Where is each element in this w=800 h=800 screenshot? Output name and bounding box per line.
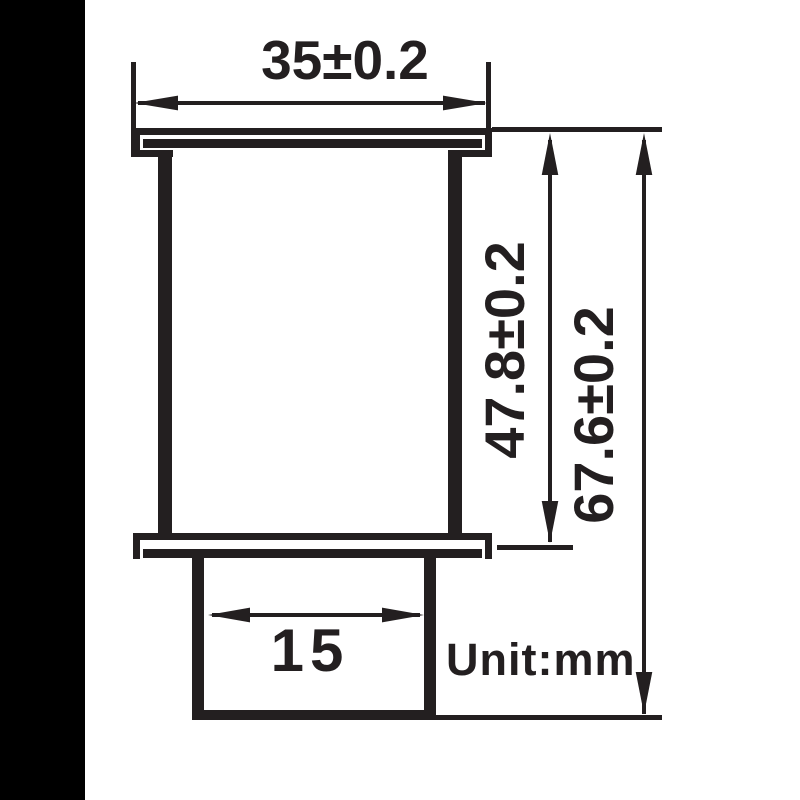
bottom-flange-right-cap	[485, 533, 492, 559]
overall-height-dimension-label: 67.6±0.2	[564, 265, 624, 565]
bottom-flange-left-cap	[133, 533, 140, 559]
stem-bottom-edge	[192, 710, 436, 720]
arrow-right-icon	[382, 607, 424, 623]
top-flange-inner-band	[143, 139, 482, 148]
bottom-flange-top-edge	[133, 533, 492, 540]
arrow-up-icon	[541, 133, 559, 175]
arrow-left-icon	[134, 95, 178, 111]
unit-note-label: Unit:mm	[446, 634, 635, 686]
body-right-wall	[448, 152, 462, 537]
extension-line-right-top	[492, 127, 662, 132]
inner-height-dimension-label: 47.8±0.2	[475, 200, 535, 500]
arrow-down-icon	[541, 501, 559, 543]
extension-line-right-bottom	[436, 715, 662, 720]
stem-left-wall	[192, 556, 204, 716]
arrow-up-icon	[635, 133, 653, 175]
body-left-wall	[158, 152, 172, 537]
top-flange-top-edge	[133, 128, 492, 135]
dimension-line-overall-height	[642, 140, 646, 714]
stem-width-dimension-label: 15	[240, 616, 380, 685]
arrow-right-icon	[443, 95, 487, 111]
dimension-line-top-width	[138, 101, 485, 105]
stem-right-wall	[424, 556, 436, 716]
extension-line-right-middle	[497, 545, 573, 550]
technical-drawing-canvas: 35±0.2 15 47.8±0.2 67.6±0.2 Unit:mm	[0, 0, 800, 800]
top-width-dimension-label: 35±0.2	[215, 28, 475, 92]
right-letterbox-bar	[0, 0, 85, 800]
dimension-line-inner-height	[548, 140, 552, 542]
arrow-down-icon	[635, 672, 653, 714]
